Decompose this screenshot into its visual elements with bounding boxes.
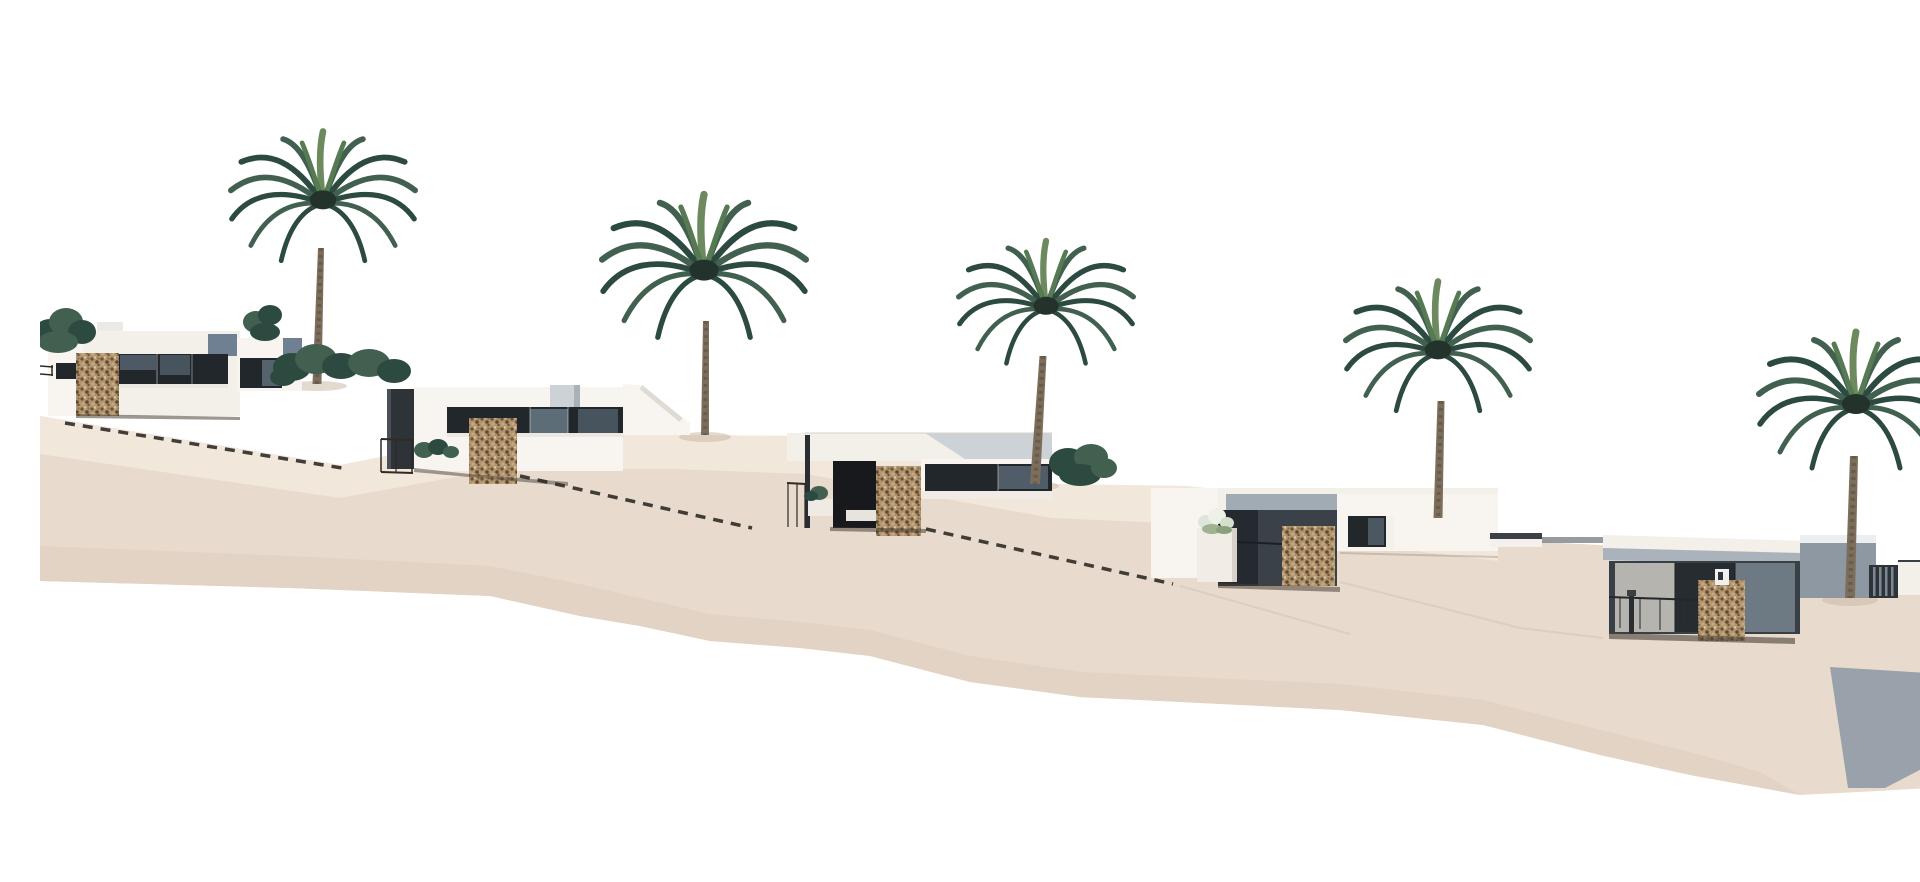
villa-5 [1603,535,1808,644]
hillside-villas-illustration [40,16,1920,866]
palm-crown [1759,332,1920,468]
bush-villa1-right [243,305,282,341]
architectural-render [40,16,1920,866]
palm-tree-4 [1346,282,1530,519]
right-edge-buildings [1800,535,1920,598]
palm-crown [959,241,1134,363]
palm-crown [231,132,415,261]
palm-crown [1346,282,1530,411]
bush-villa3-right [1049,444,1117,486]
palm-crown [602,195,806,338]
